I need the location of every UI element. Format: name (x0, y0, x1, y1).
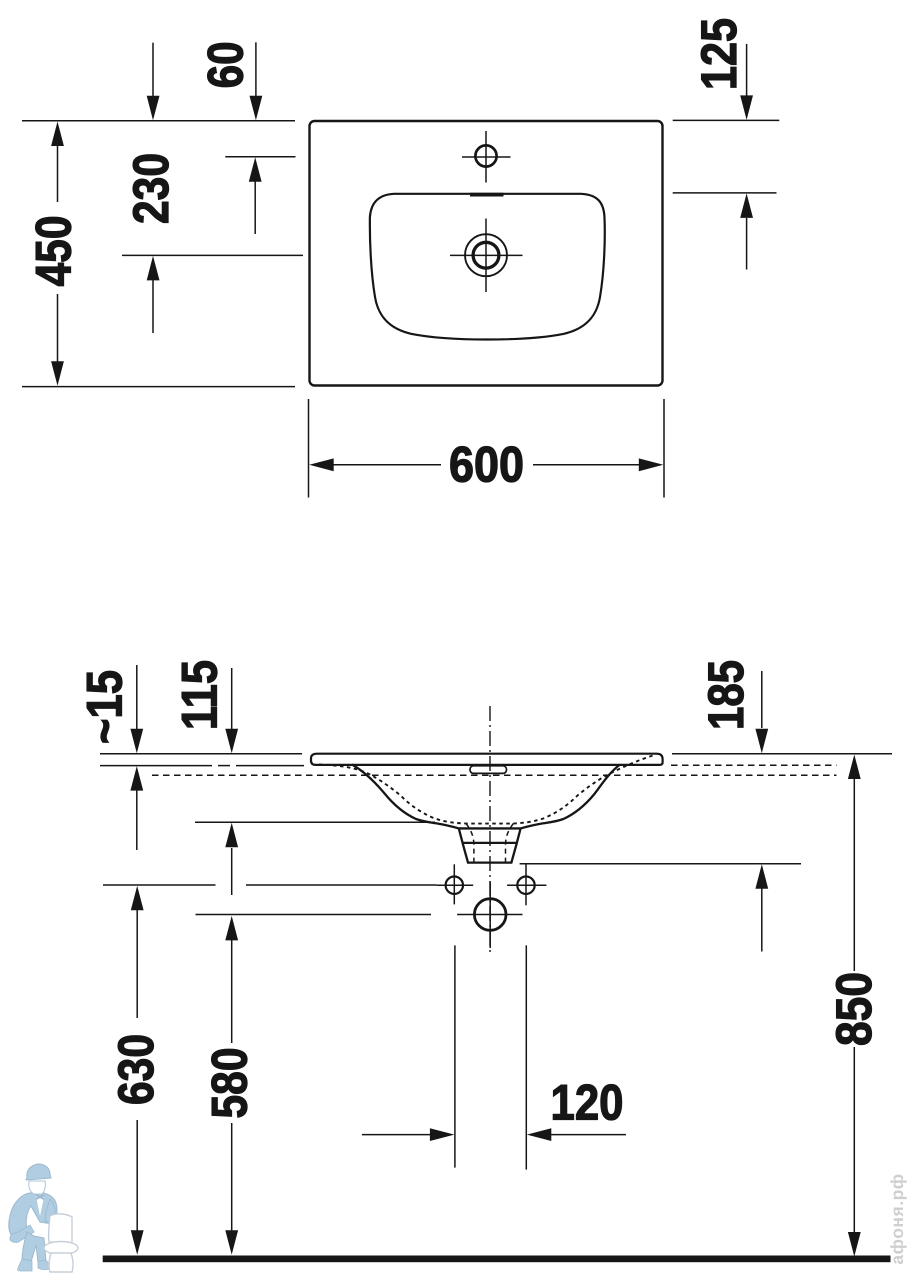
svg-text:230: 230 (123, 153, 179, 224)
svg-text:афоня.рф: афоня.рф (887, 1173, 907, 1264)
svg-text:60: 60 (198, 41, 254, 88)
svg-text:600: 600 (449, 436, 524, 492)
svg-text:~15: ~15 (77, 670, 133, 744)
svg-text:850: 850 (826, 972, 882, 1046)
svg-text:115: 115 (172, 660, 228, 730)
svg-text:580: 580 (202, 1048, 258, 1119)
svg-text:120: 120 (551, 1075, 624, 1131)
svg-text:185: 185 (698, 660, 754, 730)
svg-text:125: 125 (691, 18, 747, 90)
svg-text:630: 630 (108, 1034, 164, 1105)
svg-text:450: 450 (26, 216, 82, 287)
